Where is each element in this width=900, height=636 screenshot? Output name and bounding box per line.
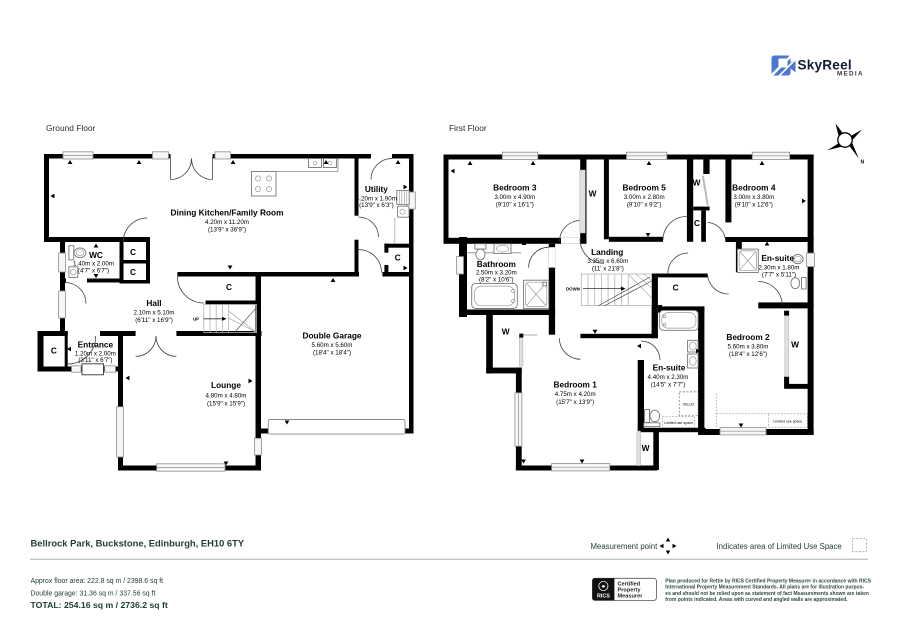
- svg-text:(14'5" x 7'7"): (14'5" x 7'7"): [651, 382, 686, 389]
- svg-text:DOWN: DOWN: [566, 286, 580, 291]
- svg-text:RICS: RICS: [597, 594, 610, 600]
- svg-text:N: N: [861, 160, 865, 166]
- svg-text:Approx floor area: 222.8 sq m: Approx floor area: 222.8 sq m / 2398.6 s…: [31, 578, 164, 585]
- svg-text:4.80m x 4.80m: 4.80m x 4.80m: [206, 393, 247, 400]
- svg-text:(13'9" x 36'9"): (13'9" x 36'9"): [208, 227, 246, 234]
- svg-text:Hall: Hall: [146, 298, 161, 308]
- svg-text:Measurement point: Measurement point: [591, 542, 659, 551]
- svg-text:C: C: [673, 283, 679, 293]
- svg-text:Utility: Utility: [365, 184, 388, 194]
- svg-text:1.40m x 2.00m: 1.40m x 2.00m: [73, 261, 114, 268]
- svg-text:5.60m x 5.60m: 5.60m x 5.60m: [312, 342, 353, 349]
- svg-text:Double garage: 31.36 sq m / 33: Double garage: 31.36 sq m / 337.56 sq ft: [31, 591, 156, 598]
- svg-text:W: W: [791, 340, 799, 350]
- svg-text:(11' x 21'8"): (11' x 21'8"): [592, 266, 624, 273]
- svg-text:(13'9" x 6'3"): (13'9" x 6'3"): [359, 202, 394, 209]
- svg-text:W: W: [589, 189, 597, 199]
- svg-text:Limited use space: Limited use space: [664, 421, 693, 425]
- svg-text:(18'4" x 18'4"): (18'4" x 18'4"): [313, 350, 351, 357]
- svg-text:En-suite: En-suite: [761, 253, 794, 263]
- svg-text:(9'10" x 12'6"): (9'10" x 12'6"): [735, 202, 773, 209]
- svg-text:C: C: [694, 218, 700, 228]
- svg-text:International Property Measur: International Property Measurement Stand…: [665, 585, 864, 591]
- svg-text:TOTAL: 254.16 sq m / 2736.2 sq: TOTAL: 254.16 sq m / 2736.2 sq ft: [31, 600, 168, 610]
- svg-text:Ground Floor: Ground Floor: [46, 123, 96, 133]
- svg-text:En-suite: En-suite: [653, 363, 686, 373]
- svg-text:Bedroom 4: Bedroom 4: [732, 183, 776, 193]
- svg-text:Limited use space: Limited use space: [773, 419, 802, 423]
- svg-text:WC: WC: [89, 250, 103, 260]
- svg-text:Indicates area of Limited Use: Indicates area of Limited Use Space: [717, 542, 842, 551]
- svg-text:Plan produced for Rettie by RI: Plan produced for Rettie by RICS Certifi…: [665, 578, 871, 584]
- svg-text:Bellrock Park, Buckstone, Edin: Bellrock Park, Buckstone, Edinburgh, EH1…: [31, 538, 245, 549]
- svg-text:(6'11" x 16'9"): (6'11" x 16'9"): [135, 317, 173, 324]
- svg-text:Bedroom 3: Bedroom 3: [493, 183, 537, 193]
- svg-text:UP: UP: [193, 317, 199, 322]
- svg-text:Bedroom 1: Bedroom 1: [554, 380, 598, 390]
- svg-text:from points indicated. Areas w: from points indicated. Areas with curved…: [665, 597, 848, 603]
- svg-text:3.35m x 6.60m: 3.35m x 6.60m: [587, 258, 628, 265]
- svg-text:Bathroom: Bathroom: [477, 259, 516, 269]
- svg-text:Measurer: Measurer: [618, 594, 644, 600]
- svg-text:2.50m x 3.20m: 2.50m x 3.20m: [476, 270, 517, 277]
- svg-text:W: W: [502, 327, 510, 337]
- svg-text:C: C: [130, 267, 136, 277]
- svg-text:3.00m x 4.90m: 3.00m x 4.90m: [494, 194, 535, 201]
- svg-text:5.60m x 3.80m: 5.60m x 3.80m: [728, 343, 769, 350]
- svg-text:W: W: [642, 443, 650, 453]
- svg-text:(9'10" x 9'2"): (9'10" x 9'2"): [627, 202, 662, 209]
- svg-text:MEDIA: MEDIA: [837, 71, 864, 78]
- svg-text:VELUX: VELUX: [683, 402, 695, 406]
- svg-text:(8'2" x 10'6"): (8'2" x 10'6"): [479, 277, 514, 284]
- svg-text:4.75m x 4.20m: 4.75m x 4.20m: [555, 391, 596, 398]
- svg-text:(9'10" x 16'1"): (9'10" x 16'1"): [496, 202, 534, 209]
- svg-text:First Floor: First Floor: [449, 123, 487, 133]
- svg-text:C: C: [130, 247, 136, 257]
- svg-text:W: W: [693, 178, 701, 188]
- svg-text:2.10m x 5.10m: 2.10m x 5.10m: [134, 310, 175, 317]
- svg-text:Double Garage: Double Garage: [302, 331, 361, 341]
- svg-text:es and should not be relied up: es and should not be relied upon as stat…: [665, 591, 869, 597]
- svg-text:(7'7" x 5'11"): (7'7" x 5'11"): [762, 272, 796, 279]
- svg-text:(4'7" x 6'7"): (4'7" x 6'7"): [78, 268, 109, 275]
- svg-text:4.40m x 2.30m: 4.40m x 2.30m: [648, 374, 689, 381]
- svg-text:C: C: [51, 346, 57, 356]
- svg-text:Entrance: Entrance: [78, 340, 114, 350]
- svg-text:(3'11" x 6'7"): (3'11" x 6'7"): [78, 357, 112, 364]
- svg-text:3.00m x 3.80m: 3.00m x 3.80m: [733, 194, 774, 201]
- svg-text:C: C: [395, 253, 401, 263]
- svg-text:2.30m x 1.80m: 2.30m x 1.80m: [759, 264, 800, 271]
- svg-text:4.20m x 11.20m: 4.20m x 11.20m: [205, 219, 249, 226]
- svg-text:(15'7" x 13'9"): (15'7" x 13'9"): [556, 399, 594, 406]
- svg-text:Lounge: Lounge: [211, 380, 241, 390]
- svg-text:Bedroom 5: Bedroom 5: [623, 183, 667, 193]
- svg-text:Bedroom 2: Bedroom 2: [726, 332, 770, 342]
- svg-text:3.00m x 2.80m: 3.00m x 2.80m: [624, 194, 665, 201]
- svg-text:Dining Kitchen/Family Room: Dining Kitchen/Family Room: [171, 208, 284, 218]
- svg-text:(18'4" x 12'6"): (18'4" x 12'6"): [729, 351, 767, 358]
- svg-text:Landing: Landing: [591, 247, 623, 257]
- svg-text:(15'9" x 15'9"): (15'9" x 15'9"): [207, 401, 245, 408]
- svg-text:C: C: [226, 282, 232, 292]
